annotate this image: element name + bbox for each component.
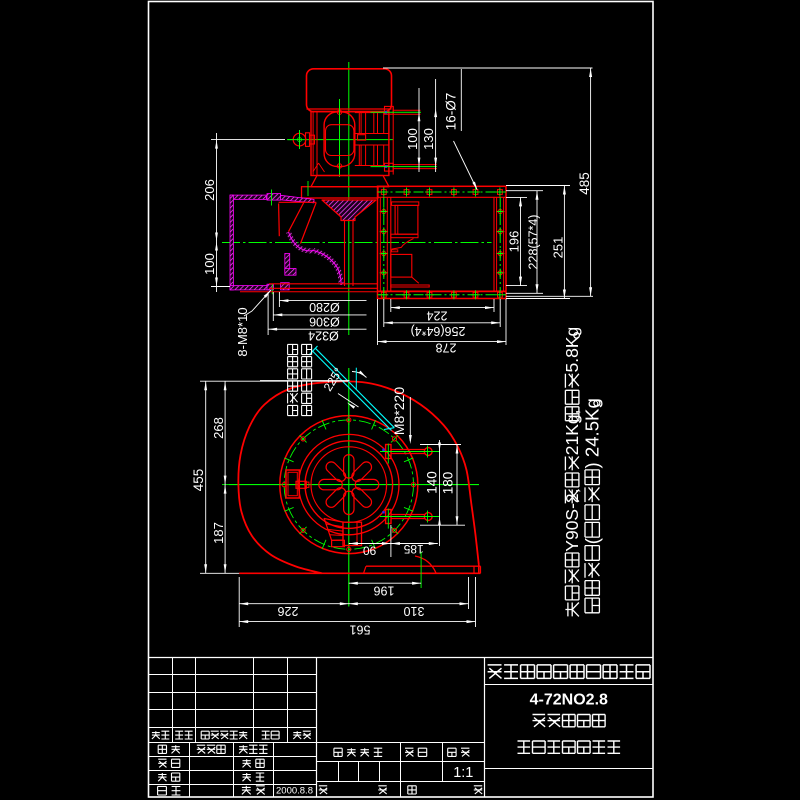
- svg-text:196: 196: [507, 231, 522, 253]
- svg-text:561: 561: [350, 622, 371, 636]
- svg-text:226: 226: [278, 604, 299, 618]
- svg-text:(: (: [581, 537, 602, 544]
- svg-text:Ø306: Ø306: [309, 314, 340, 328]
- svg-text:455: 455: [191, 469, 206, 492]
- svg-text:187: 187: [211, 522, 226, 544]
- svg-text:251: 251: [551, 237, 566, 259]
- svg-text:225°: 225°: [321, 365, 346, 394]
- svg-text:485: 485: [577, 172, 592, 195]
- svg-text:Ø324: Ø324: [308, 329, 339, 343]
- svg-text:90: 90: [363, 544, 377, 558]
- svg-text:M8*220: M8*220: [391, 387, 407, 435]
- svg-text:228(57*4): 228(57*4): [527, 215, 541, 270]
- svg-text:8-M8*10: 8-M8*10: [235, 307, 250, 356]
- svg-text:140: 140: [424, 471, 439, 494]
- svg-text:196: 196: [374, 584, 395, 598]
- svg-text:278: 278: [436, 341, 457, 355]
- svg-text:100: 100: [202, 253, 217, 275]
- svg-text:206: 206: [202, 179, 217, 201]
- svg-text:16-Ø7: 16-Ø7: [443, 93, 458, 131]
- svg-text:224: 224: [427, 308, 448, 322]
- svg-text:Ø280: Ø280: [309, 300, 340, 314]
- svg-text:4-72NO2.8: 4-72NO2.8: [530, 692, 608, 709]
- svg-text:2000.8.8: 2000.8.8: [276, 786, 313, 797]
- svg-text:180: 180: [440, 472, 455, 495]
- svg-text:1:1: 1:1: [453, 765, 473, 781]
- svg-text:100: 100: [405, 128, 420, 150]
- svg-text:310: 310: [404, 604, 425, 618]
- svg-text:268: 268: [211, 417, 226, 439]
- svg-text:130: 130: [421, 128, 436, 150]
- svg-text:256(64*4): 256(64*4): [411, 324, 466, 338]
- svg-text:) 24.5Kg: ) 24.5Kg: [581, 398, 602, 468]
